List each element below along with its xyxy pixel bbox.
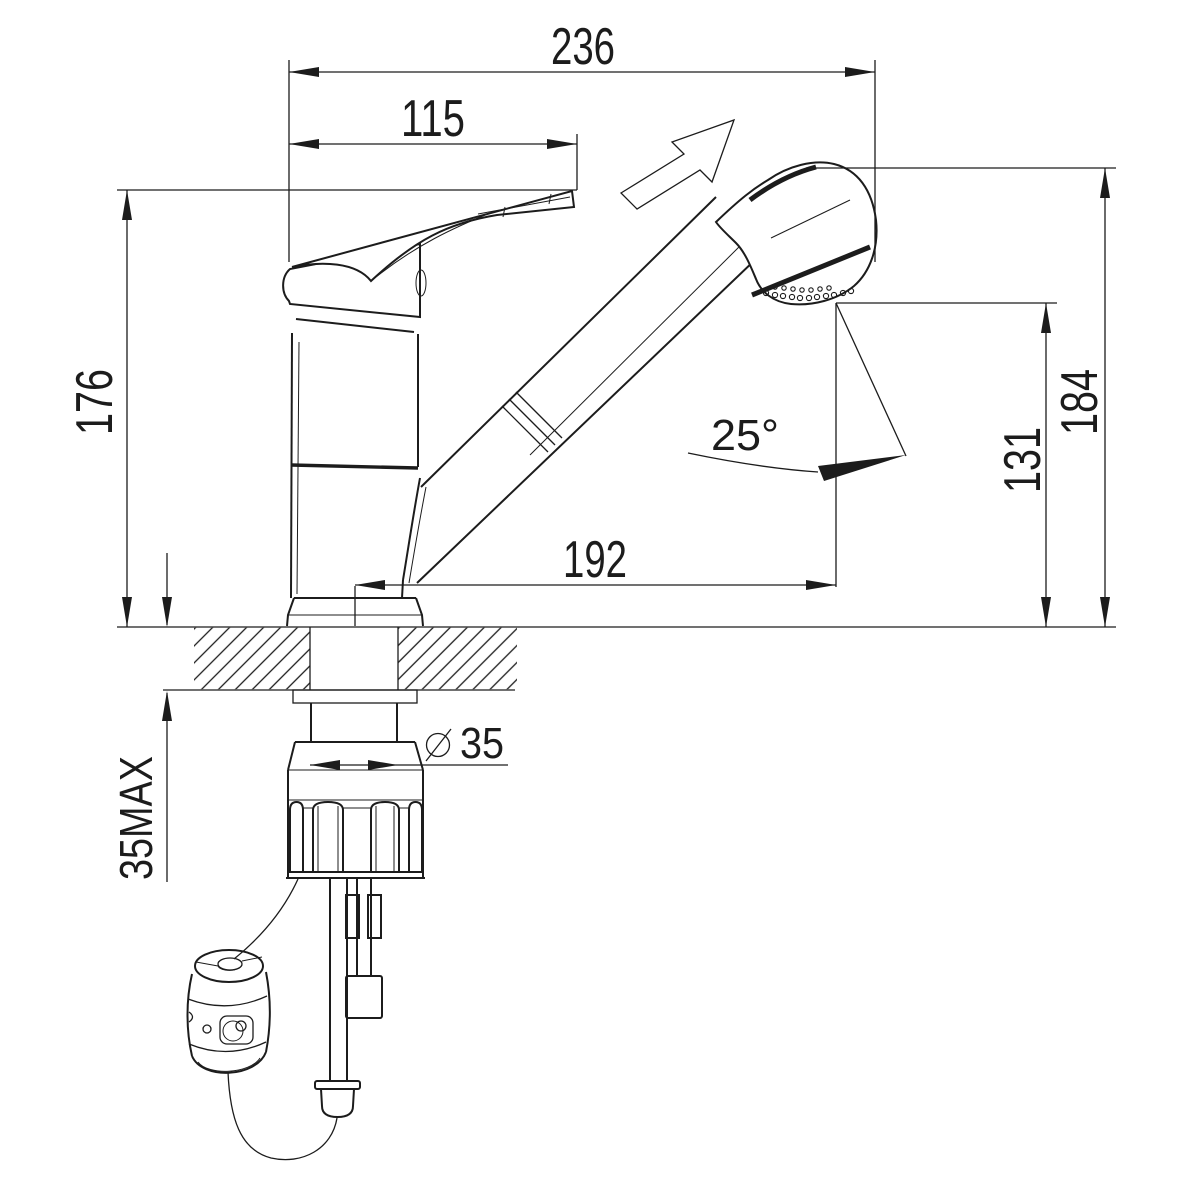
arrowhead: [162, 597, 172, 627]
arrowhead: [1100, 597, 1110, 627]
hose-upper-run: [234, 879, 298, 959]
base-right-flare: [416, 598, 423, 626]
spray-head-outline: [716, 162, 877, 304]
arrowhead: [1041, 597, 1051, 627]
mounting-hardware: [286, 690, 425, 1117]
arrowhead: [818, 455, 906, 481]
base-left-flare: [287, 598, 294, 626]
wand-joint-line-1: [502, 406, 548, 452]
arrowhead: [806, 580, 836, 590]
faucet-body: [287, 319, 426, 626]
elbow-inner-curve: [403, 478, 420, 580]
arrowhead: [368, 760, 398, 770]
tube-upper-edge: [421, 197, 716, 487]
dimension-label: 236: [551, 18, 615, 76]
stud-block: [346, 976, 382, 1018]
nut-rib: [290, 802, 303, 872]
weight-window: [220, 1016, 253, 1044]
pullout-direction-arrow-icon: [621, 120, 734, 209]
arrowhead: [289, 67, 319, 77]
dimension-label: 176: [66, 369, 124, 435]
arrowhead: [547, 139, 577, 149]
mounting-nut: [286, 742, 425, 878]
wand-joint-line-3: [516, 392, 562, 438]
dimension-label: 25°: [711, 411, 779, 460]
counter-hatch-right: [398, 628, 517, 690]
body-shading-line: [297, 342, 299, 594]
weight-bottom: [192, 1052, 266, 1073]
elbow-inner-curve-2: [409, 487, 426, 583]
arrowhead: [122, 190, 132, 220]
arrowhead: [355, 580, 385, 590]
weight-split-seam: [196, 962, 218, 966]
shank-washer: [293, 690, 417, 703]
spray-head: [716, 162, 877, 304]
nut-rib: [371, 802, 399, 872]
dim-deck-thickness: 35MAX: [110, 553, 172, 882]
dimension-label: 184: [1051, 369, 1109, 435]
dim-hole-diameter: 35: [310, 719, 508, 770]
technical-drawing-canvas: 236 115 176 184 131 192: [0, 0, 1200, 1200]
angle-reference-line: [836, 303, 906, 456]
dim-reach-192: 192: [355, 303, 836, 626]
weight-band-upper: [188, 996, 267, 1006]
arrowhead: [1100, 168, 1110, 198]
body-top-joint: [296, 319, 414, 332]
weight-screw: [236, 1021, 246, 1031]
diameter-symbol-icon: [426, 729, 451, 761]
dimension-label: 35: [460, 719, 504, 768]
counter-hatch-left: [194, 628, 310, 690]
countertop-section: [117, 627, 1116, 690]
arrowhead: [162, 691, 172, 721]
weight-edge-notch: [189, 1012, 193, 1022]
nut-rib: [409, 802, 422, 872]
spray-hose: [228, 879, 337, 1160]
arrowhead: [310, 760, 340, 770]
weight-right-side: [266, 972, 270, 1052]
stud-plate-right: [368, 895, 381, 938]
dimension-label: 131: [994, 427, 1052, 493]
hose-lower-loop: [228, 1072, 337, 1160]
dimension-label: 115: [401, 90, 465, 148]
dimension-label: 35MAX: [110, 756, 162, 880]
mounting-stud: [346, 878, 382, 1018]
dimension-label: 192: [563, 531, 627, 589]
arrowhead: [122, 597, 132, 627]
tube-fitting-flange: [315, 1081, 360, 1089]
spout-tube: [417, 197, 780, 583]
arrowhead: [289, 139, 319, 149]
dim-handle-length: 115: [289, 90, 577, 190]
cartridge-joint-line: [291, 465, 418, 468]
weight-pin-hole: [203, 1025, 211, 1033]
wand-joint-line-2: [509, 399, 555, 445]
lever-handle-group: [283, 191, 574, 317]
faucet-installation-drawing: 236 115 176 184 131 192: [0, 0, 1200, 1200]
supply-tube: [315, 878, 360, 1117]
counterweight: [188, 950, 270, 1073]
body-right-lower-edge: [402, 580, 403, 598]
arrowhead: [845, 67, 875, 77]
tube-fitting: [321, 1089, 354, 1117]
dim-spray-angle: 25°: [688, 303, 906, 481]
arrowhead: [1041, 303, 1051, 333]
